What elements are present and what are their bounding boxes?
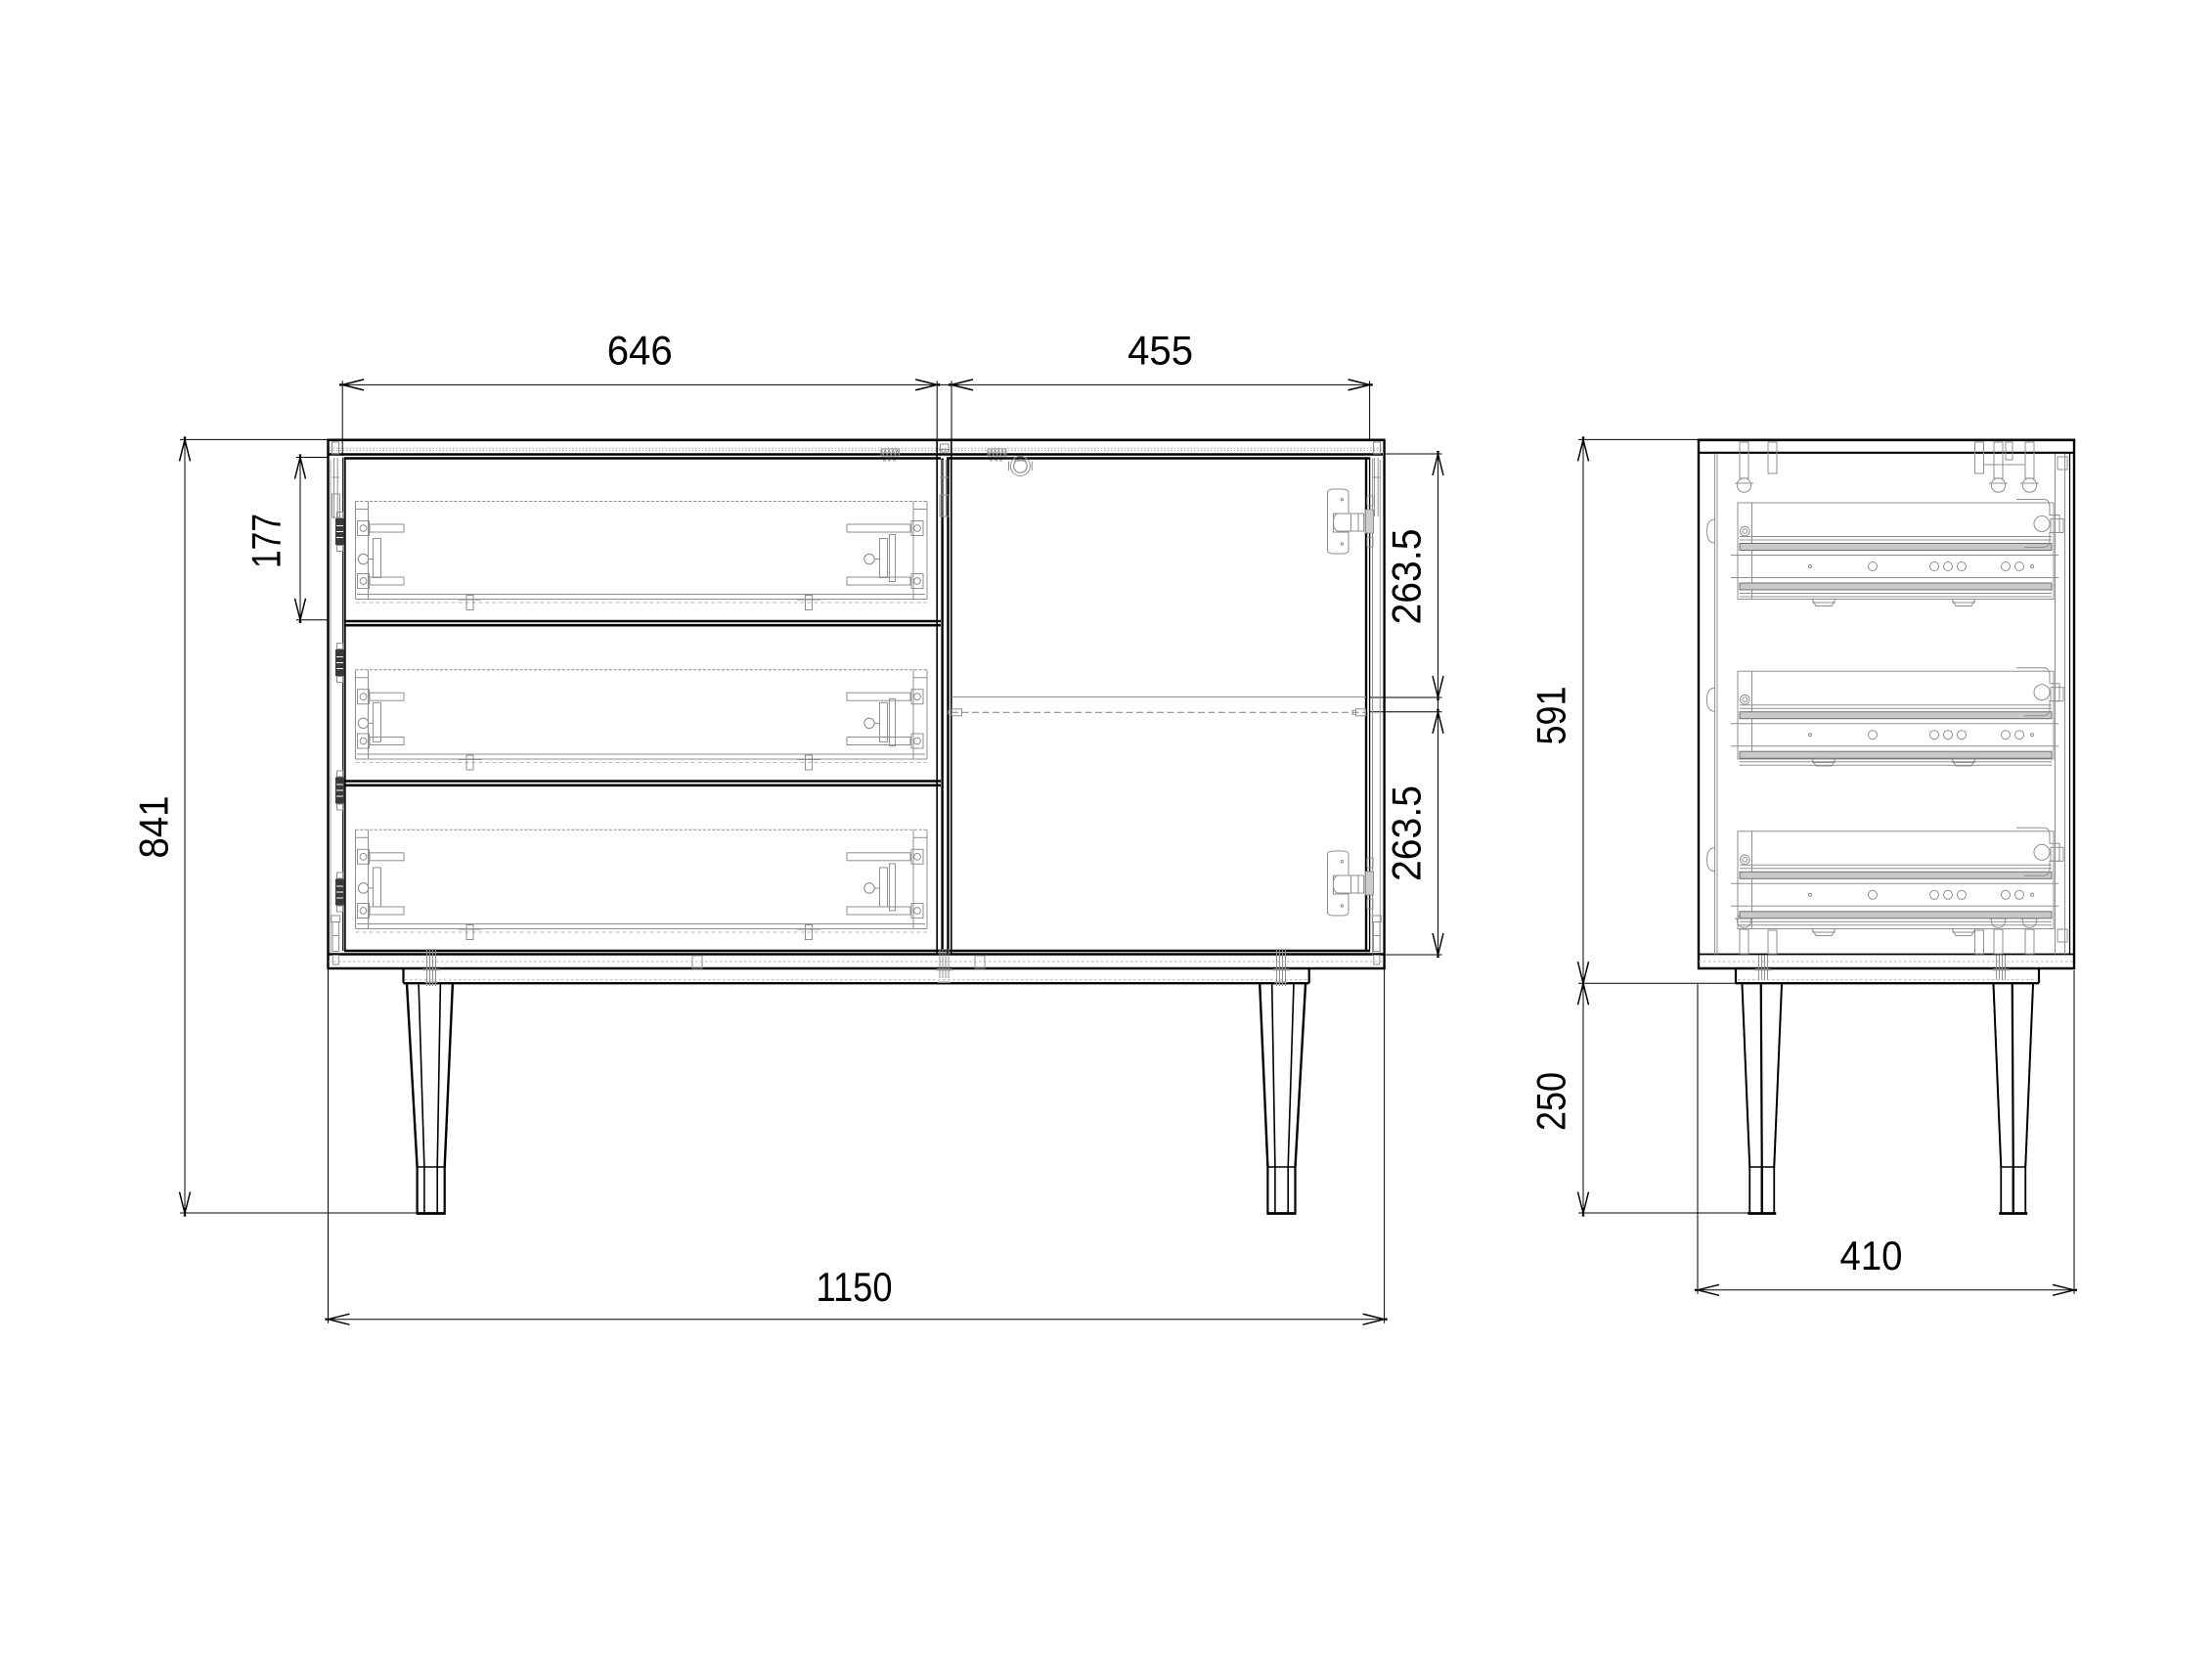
svg-text:177: 177 xyxy=(243,514,289,568)
svg-text:263.5: 263.5 xyxy=(1384,529,1430,625)
svg-text:250: 250 xyxy=(1528,1072,1574,1131)
svg-text:591: 591 xyxy=(1528,687,1574,745)
svg-text:841: 841 xyxy=(131,796,177,859)
svg-text:1150: 1150 xyxy=(817,1264,893,1310)
svg-text:455: 455 xyxy=(1128,328,1193,374)
svg-text:646: 646 xyxy=(607,328,673,374)
svg-text:263.5: 263.5 xyxy=(1384,785,1430,881)
svg-text:410: 410 xyxy=(1840,1233,1903,1278)
